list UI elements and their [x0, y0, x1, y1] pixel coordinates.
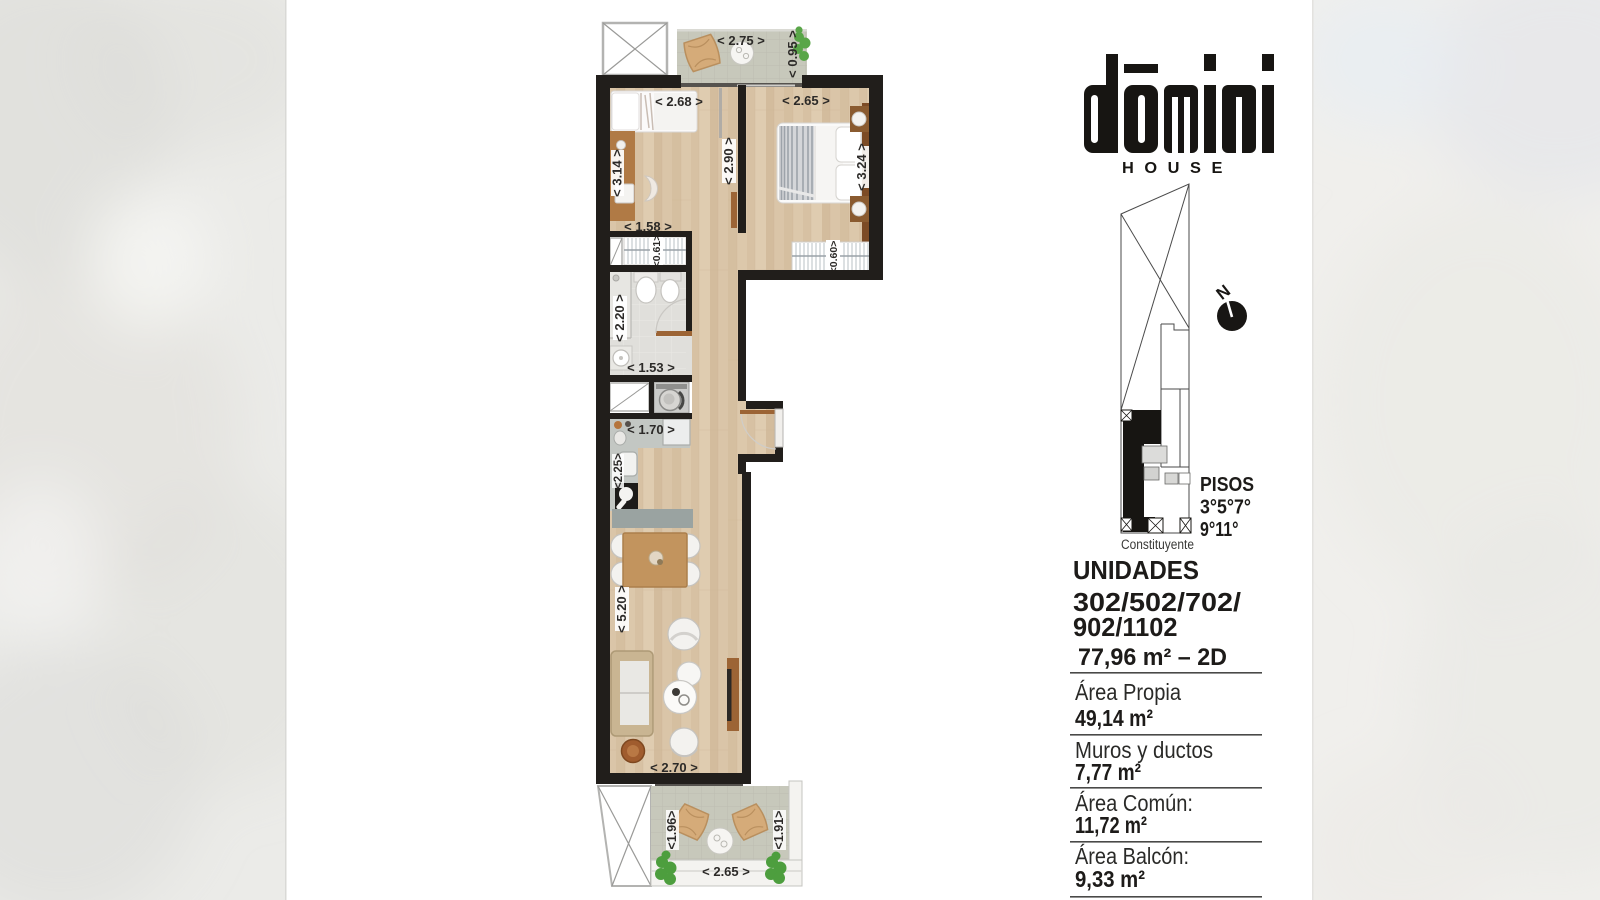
- svg-text:< 1.53 >: < 1.53 >: [627, 360, 675, 375]
- svg-text:< 2.70 >: < 2.70 >: [650, 760, 698, 775]
- svg-text:49,14 m²: 49,14 m²: [1075, 705, 1153, 731]
- svg-text:< 0.95 >: < 0.95 >: [785, 30, 800, 78]
- svg-text:< 3.24 >: < 3.24 >: [854, 143, 869, 191]
- svg-text:UNIDADES: UNIDADES: [1073, 557, 1199, 585]
- svg-text:9,33 m²: 9,33 m²: [1075, 866, 1145, 892]
- svg-text:< 2.75 >: < 2.75 >: [717, 33, 765, 48]
- svg-text:< 2.65 >: < 2.65 >: [702, 864, 750, 879]
- svg-text:7,77 m²: 7,77 m²: [1075, 759, 1141, 785]
- svg-text:< 2.90 >: < 2.90 >: [721, 137, 736, 185]
- svg-text:< 1.70 >: < 1.70 >: [627, 422, 675, 437]
- svg-text:< 5.20 >: < 5.20 >: [614, 585, 629, 633]
- svg-text:< 2.68 >: < 2.68 >: [655, 94, 703, 109]
- svg-text:77,96 m² – 2D: 77,96 m² – 2D: [1078, 644, 1227, 671]
- svg-text:< 2.65 >: < 2.65 >: [782, 93, 830, 108]
- svg-text:3°5°7°: 3°5°7°: [1200, 496, 1251, 519]
- svg-text:<0.60>: <0.60>: [828, 241, 840, 274]
- svg-text:Constituyente: Constituyente: [1121, 537, 1194, 552]
- svg-text:302/502/702/: 302/502/702/: [1073, 589, 1241, 617]
- svg-text:< 2.20 >: < 2.20 >: [612, 294, 627, 342]
- svg-text:11,72 m²: 11,72 m²: [1075, 812, 1147, 838]
- svg-text:9°11°: 9°11°: [1200, 518, 1239, 541]
- svg-text:<2.25>: <2.25>: [613, 453, 625, 489]
- svg-text:Área Propia: Área Propia: [1075, 679, 1181, 705]
- svg-text:<1.96>: <1.96>: [665, 811, 679, 850]
- svg-text:<0.61>: <0.61>: [651, 235, 663, 268]
- svg-text:<1.91>: <1.91>: [772, 811, 786, 850]
- svg-text:902/1102: 902/1102: [1073, 614, 1178, 642]
- svg-text:HOUSE: HOUSE: [1122, 160, 1233, 177]
- svg-text:PISOS: PISOS: [1200, 473, 1254, 496]
- svg-text:< 3.14 >: < 3.14 >: [610, 149, 625, 197]
